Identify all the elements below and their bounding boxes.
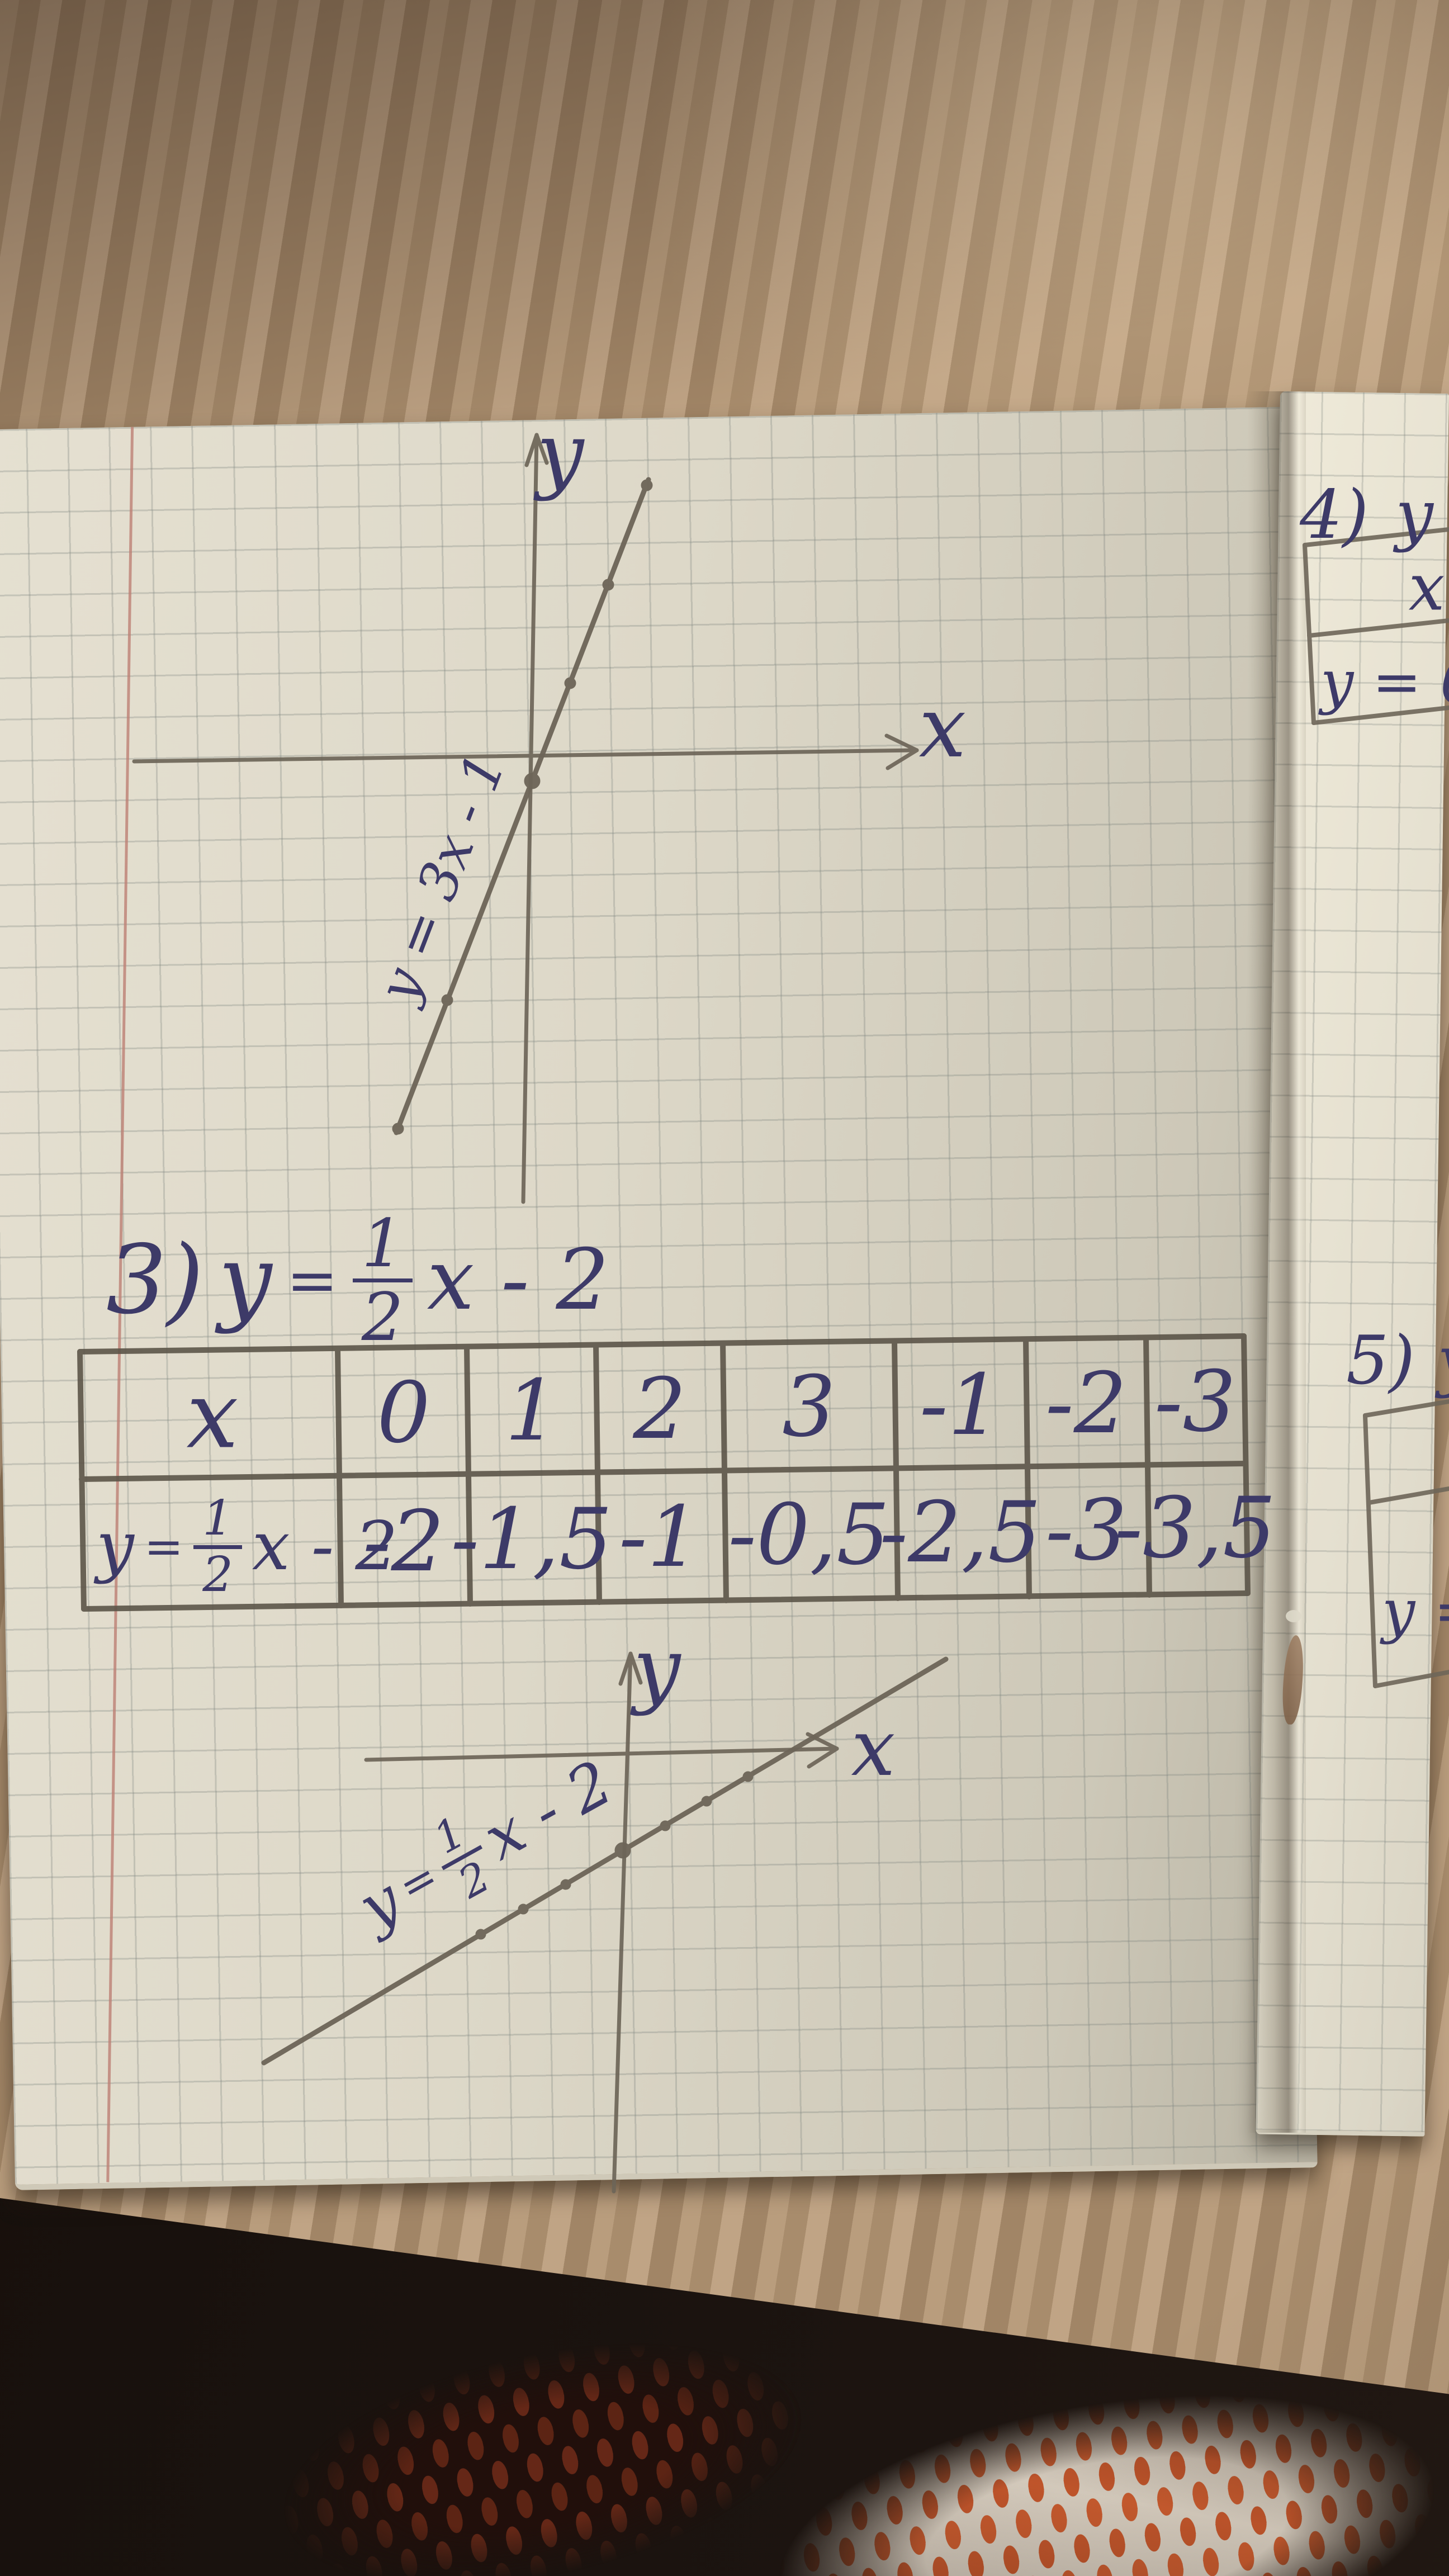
graph2-line-label: y = 1 2 x - 2 [485,1845,762,1936]
problem-3-equals: = [287,1249,338,1311]
fraction-denominator: 2 [193,1545,242,1598]
table3-x-value: 0 [377,1371,430,1455]
table3-x-value: 3 [782,1365,835,1449]
table3-x-value: 2 [633,1367,686,1451]
table3-y-value: -1 [619,1495,700,1579]
graph2-y-axis-label: y [633,1627,681,1711]
problem-4-text: y = [1395,482,1449,549]
table3-header-x: x [186,1370,238,1462]
table3-y-value: -2 [363,1500,444,1584]
table3-x-value: 1 [505,1369,558,1453]
problem-4-number: 4) [1300,482,1368,549]
problem-3-fraction: 1 2 [353,1212,413,1348]
notebook-photo-scene: y x y = 3x - 1 3) y = 1 2 x - 2 x 0 1 2 … [0,0,1449,2576]
fraction-denominator: 2 [353,1278,413,1348]
problem-5-heading: 5) y [1346,1328,1449,1395]
table3-x-value: -3 [1154,1360,1236,1444]
table3-x-value: -1 [920,1363,1001,1447]
problem-3-lhs: y [218,1233,272,1328]
fraction-numerator: 1 [193,1496,242,1545]
paper-speck [1286,1610,1301,1622]
table3-y-value: -1,5 [451,1498,612,1581]
problem-3-rhs: x - 2 [427,1238,609,1322]
problem-5-number: 5) [1346,1328,1415,1395]
table4-row-value: y = 0,8 [1320,653,1449,712]
problem-3-heading: 3) y = 1 2 x - 2 [106,1202,609,1358]
row-label-equals: = [144,1523,183,1570]
graph1-line-label: y = 3x - 1 [442,878,702,931]
table3-y-value: -3,5 [1114,1486,1276,1570]
fraction-numerator: 1 [353,1212,413,1278]
problem-5-text: y [1437,1328,1449,1395]
table5-row-value: y = [1382,1582,1449,1641]
table3-x-value: -2 [1045,1362,1127,1446]
page-gutter-fold [1248,391,1306,2133]
table3-row-label: y = 1 2 x - 2 [96,1494,398,1600]
graph1-y-axis-label: y [537,412,584,496]
table4-header-x: x [1409,556,1445,621]
row-label-lhs: y [96,1513,134,1580]
table3-y-value: -2,5 [879,1491,1041,1575]
line-label-equals: = [392,1854,445,1910]
graph1-x-axis-label: x [919,686,967,770]
graph2-x-axis-label: x [851,1710,896,1788]
row-label-fraction: 1 2 [193,1496,242,1598]
problem-3-number: 3) [106,1233,203,1328]
table3-y-value: -0,5 [728,1493,889,1577]
problem-4-heading: 4) y = [1300,482,1449,549]
